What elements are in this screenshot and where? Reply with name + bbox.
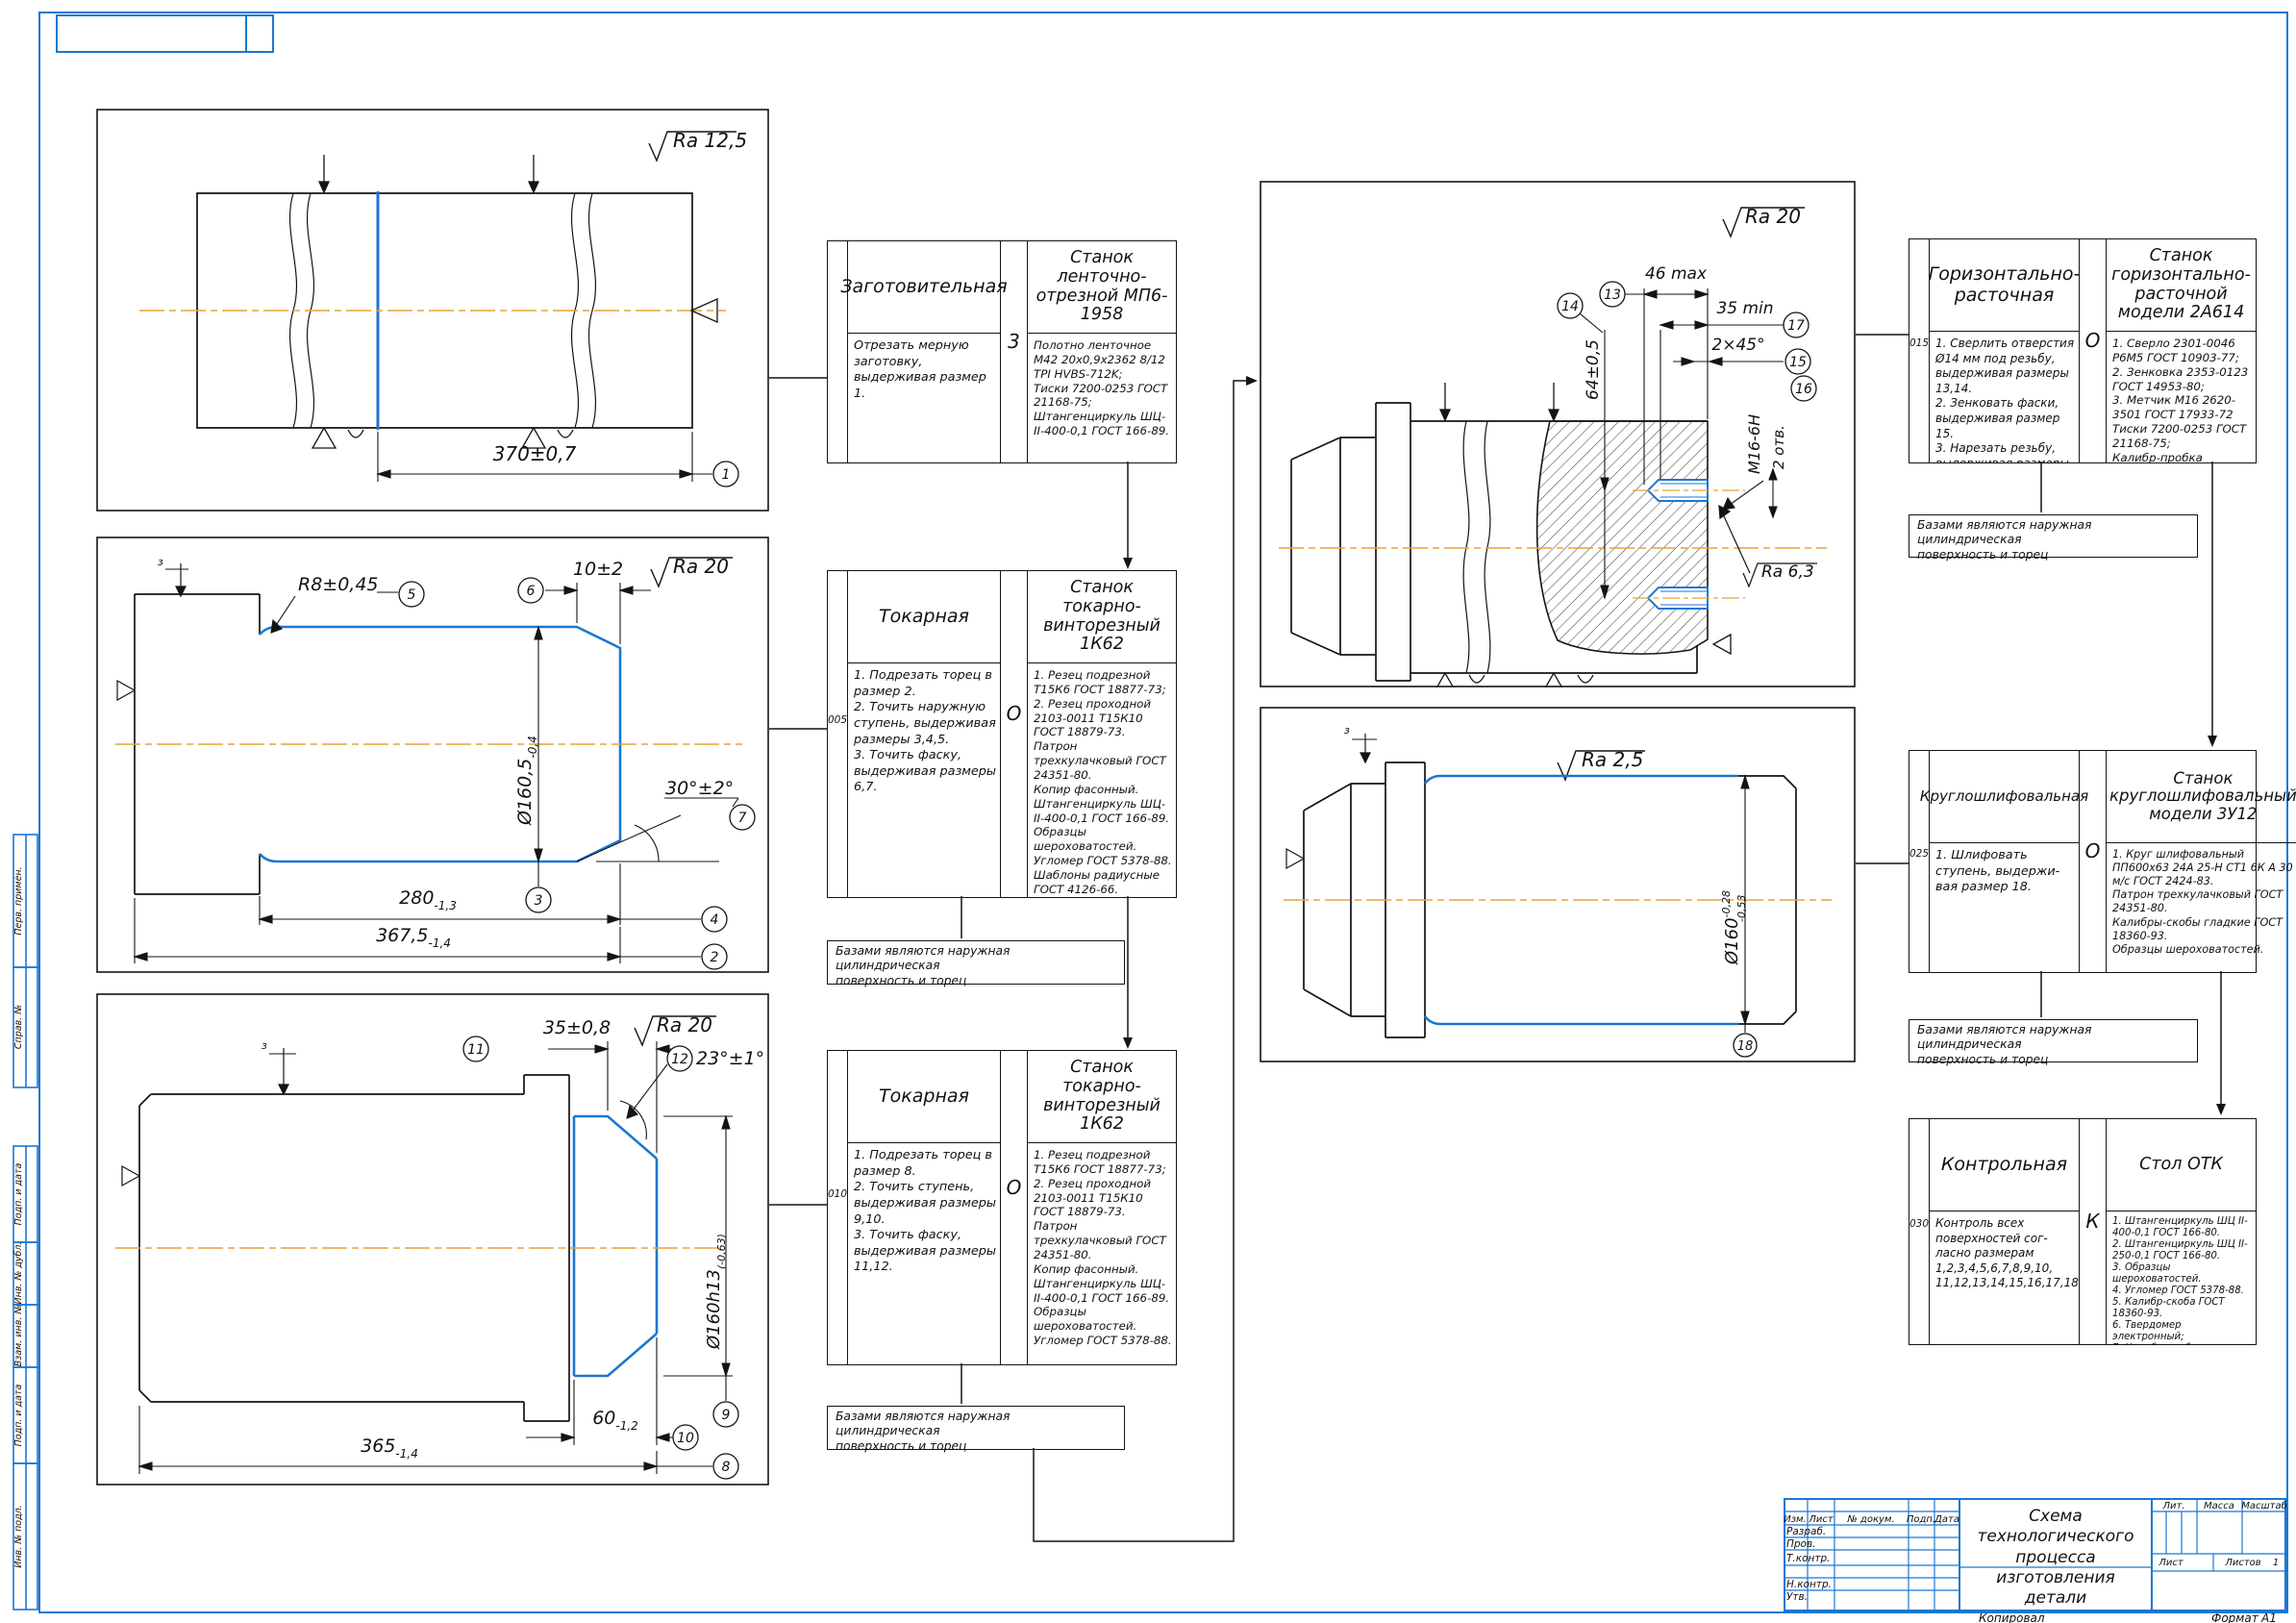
machine-name: Станок ленточно-отрезной МП6-1958 xyxy=(1028,241,1176,334)
dim-dia160-text: Ø160-0,28-0,53 xyxy=(1720,890,1748,965)
clamp-icon xyxy=(122,1048,296,1186)
machine-name: Станок токарно-винторезный 1К62 xyxy=(1028,571,1176,663)
format-label: Формат xyxy=(2211,1611,2259,1623)
balloon-4: 4 xyxy=(702,907,727,932)
op-number-cell xyxy=(828,241,848,462)
svg-text:11: 11 xyxy=(467,1042,485,1058)
datum-note-015: Базами являются наружная цилиндрическая … xyxy=(1909,514,2198,558)
dim-10 xyxy=(545,583,651,644)
balloon-18: 18 xyxy=(1734,1034,1757,1057)
op-steps: Отрезать мерную заготовку, выдерживая ра… xyxy=(848,334,1000,462)
clamp-label: з xyxy=(158,556,163,568)
dim-10-text: 10±2 xyxy=(573,559,623,580)
dim-dia160h13-text: Ø160h13(-0,63) xyxy=(704,1234,728,1350)
roughness-value: Ra 20 xyxy=(1745,205,1801,228)
dim-chamfer-text: 2×45° xyxy=(1711,336,1764,355)
svg-text:5: 5 xyxy=(408,587,416,603)
svg-text:16: 16 xyxy=(1795,382,1812,397)
thread-callout-qty: 2 отв. xyxy=(1770,425,1787,469)
op-steps: Контроль всех поверхностей сог- ласно ра… xyxy=(1930,1211,2079,1344)
balloon-16: 16 xyxy=(1791,376,1816,401)
machine-tools: 1. Резец подрезной Т15К6 ГОСТ 18877-73; … xyxy=(1028,663,1176,897)
dim-angle23 xyxy=(620,1064,667,1139)
machine-name: Станок токарно-винторезный 1К62 xyxy=(1028,1051,1176,1143)
svg-text:18: 18 xyxy=(1737,1039,1754,1054)
drawing-title: Схема технологического процесса изготовл… xyxy=(1963,1507,2148,1609)
op-number-cell: 005 xyxy=(828,571,848,897)
dim-35-text: 35±0,8 xyxy=(543,1017,611,1038)
machine-tools: Полотно ленточное М42 20х0,9х2362 8/12 T… xyxy=(1028,334,1176,462)
balloon-9: 9 xyxy=(713,1402,738,1427)
svg-text:13: 13 xyxy=(1604,287,1621,303)
machine-name: Стол ОТК xyxy=(2107,1119,2256,1211)
tb-row-utv: Утв. xyxy=(1786,1591,1808,1603)
op-name: Контрольная xyxy=(1930,1119,2079,1211)
tb-sheet: Лист xyxy=(2158,1558,2184,1568)
balloon-10: 10 xyxy=(673,1425,698,1450)
balloon-5: 5 xyxy=(399,582,424,607)
datum-note-025: Базами являются наружная цилиндрическая … xyxy=(1909,1019,2198,1062)
topleft-table xyxy=(56,14,274,53)
tb-sheets: Листов xyxy=(2224,1558,2260,1568)
margin-label: Инв. № подл. xyxy=(13,1505,24,1568)
opblock-tokarnaya-005: 005 Токарная 1. Подрезать торец в размер… xyxy=(827,570,1177,898)
tb-col-doc: № докум. xyxy=(1846,1514,1894,1525)
margin-label: Перв. примен. xyxy=(13,866,24,935)
dim-angle30 xyxy=(577,798,738,861)
tb-row-razrab: Разраб. xyxy=(1786,1526,1826,1537)
op-code-cell: 3 xyxy=(1000,241,1028,462)
dim-r8-text: R8±0,45 xyxy=(298,574,379,595)
dim-370-text: 370±0,7 xyxy=(493,442,577,465)
dim-280-text: 280-1,3 xyxy=(399,887,457,912)
op-number-cell: 025 xyxy=(1909,751,1930,972)
tb-col-sign: Подп. xyxy=(1907,1514,1935,1525)
balloon-1: 1 xyxy=(713,462,738,487)
roughness-value: Ra 2,5 xyxy=(1582,748,1643,771)
margin-label: Взам. инв. № xyxy=(13,1305,24,1367)
svg-text:3: 3 xyxy=(535,893,543,909)
balloon-2: 2 xyxy=(702,944,727,969)
tb-sheets-value: 1 xyxy=(2273,1558,2279,1568)
svg-text:2: 2 xyxy=(711,950,719,965)
datum-note-010: Базами являются наружная цилиндрическая … xyxy=(827,1406,1125,1450)
tb-scale: Масштаб xyxy=(2241,1500,2286,1511)
balloon-6: 6 xyxy=(518,578,543,603)
roughness-value: Ra 20 xyxy=(673,555,729,578)
dim-35min-text: 35 min xyxy=(1716,299,1773,318)
dim-angle30-text: 30°±2° xyxy=(665,778,734,799)
balloon-15: 15 xyxy=(1785,349,1810,374)
format-value: А1 xyxy=(2261,1611,2277,1623)
dim-280 xyxy=(260,863,701,925)
roughness-value: Ra 20 xyxy=(657,1013,712,1036)
op-code-cell: О xyxy=(2079,751,2107,972)
margin-label: Подп. и дата xyxy=(13,1162,24,1225)
tb-col-izm: Изм. xyxy=(1784,1514,1807,1525)
dim-angle23-text: 23°±1° xyxy=(696,1048,764,1069)
machine-tools: 1. Резец подрезной Т15К6 ГОСТ 18877-73; … xyxy=(1028,1143,1176,1364)
balloon-17: 17 xyxy=(1784,312,1809,337)
tb-row-prov: Пров. xyxy=(1786,1538,1816,1550)
section-hatch xyxy=(1537,421,1708,654)
tb-col-date: Дата xyxy=(1934,1514,1959,1525)
drawing-turning-1: Ra 20 з R8±0,45 5 10±2 6 Ø160,5-0,4 3 xyxy=(96,537,769,973)
svg-text:9: 9 xyxy=(722,1408,731,1423)
op-number-cell: 010 xyxy=(828,1051,848,1364)
tb-lit: Лит. xyxy=(2161,1501,2184,1511)
drawing-turning-2: Ra 20 з 35±0,8 11 12 23°±1° Ø160h13(-0, xyxy=(96,993,769,1486)
dim-64-text: 64±0,5 xyxy=(1584,339,1603,400)
opblock-zagotovitelnaya: Заготовительная Отрезать мерную заготовк… xyxy=(827,240,1177,463)
op-code-cell: К xyxy=(2079,1119,2107,1344)
thread-callout: М16-6Н xyxy=(1745,414,1763,474)
op-number-cell: 015 xyxy=(1909,239,1930,462)
dim-365-text: 365-1,4 xyxy=(361,1436,418,1461)
balloon-3: 3 xyxy=(526,887,551,912)
dim-60-text: 60-1,2 xyxy=(592,1408,638,1433)
svg-text:15: 15 xyxy=(1789,355,1807,370)
clamp-label: з xyxy=(1344,724,1350,737)
op-code-cell: О xyxy=(2079,239,2107,462)
thread-leader xyxy=(1723,469,1777,517)
op-code-cell: О xyxy=(1000,571,1028,897)
opblock-tokarnaya-010: 010 Токарная 1. Подрезать торец в размер… xyxy=(827,1050,1177,1365)
balloon-7: 7 xyxy=(730,805,755,830)
svg-text:17: 17 xyxy=(1787,318,1805,334)
left-margin-labels: Перв. примен. Справ. № Подп. и дата Инв.… xyxy=(12,827,38,1613)
opblock-shlifovalnaya-025: 025 Круглошлифовальная 1. Шлифовать ступ… xyxy=(1909,750,2257,973)
tb-massa: Масса xyxy=(2204,1501,2234,1511)
clamp-label: з xyxy=(262,1039,267,1052)
balloon-8: 8 xyxy=(713,1454,738,1479)
op-steps: 1. Подрезать торец в размер 8. 2. Точить… xyxy=(848,1143,1000,1364)
topleft-table-divider xyxy=(245,14,247,51)
dim-365 xyxy=(139,1406,712,1474)
machine-tools: 1. Штангенциркуль ШЦ II-400-0,1 ГОСТ 166… xyxy=(2107,1211,2256,1344)
op-steps: 1. Шлифовать ступень, выдержи- вая разме… xyxy=(1930,843,2079,972)
tb-row-nkontr: Н.контр. xyxy=(1786,1579,1832,1590)
dim-46-text: 46 max xyxy=(1645,264,1708,284)
op-steps: 1. Сверлить отверстия Ø14 мм под резьбу,… xyxy=(1930,332,2079,462)
margin-label: Справ. № xyxy=(13,1005,24,1049)
machined-profile xyxy=(574,1116,657,1376)
technology-process-sheet: Перв. примен. Справ. № Подп. и дата Инв.… xyxy=(0,0,2296,1623)
drawing-grinding: Ra 2,5 з Ø160-0,28-0,53 18 xyxy=(1260,707,1856,1062)
svg-text:8: 8 xyxy=(722,1460,731,1475)
op-name: Горизонтально-расточная xyxy=(1930,239,2079,332)
tb-row-tkontr: Т.контр. xyxy=(1786,1553,1831,1564)
machine-tools: 1. Сверло 2301-0046 Р6М5 ГОСТ 10903-77; … xyxy=(2107,332,2256,462)
opblock-rastochnaya-015: 015 Горизонтально-расточная 1. Сверлить … xyxy=(1909,238,2257,463)
op-steps: 1. Подрезать торец в размер 2. 2. Точить… xyxy=(848,663,1000,897)
roughness-hole-value: Ra 6,3 xyxy=(1761,562,1814,582)
margin-label: Подп. и дата xyxy=(13,1384,24,1446)
machine-name: Станок горизонтально-расточной модели 2А… xyxy=(2107,239,2256,332)
clamp-icons xyxy=(312,155,717,448)
op-name: Круглошлифовальная xyxy=(1930,751,2079,843)
copied-label: Копировал xyxy=(1979,1611,2045,1623)
balloon-12: 12 xyxy=(667,1046,692,1071)
clamp-icon xyxy=(1286,734,1377,868)
datum-note-005: Базами являются наружная цилиндрическая … xyxy=(827,940,1125,985)
svg-text:14: 14 xyxy=(1561,299,1579,314)
op-code-cell: О xyxy=(1000,1051,1028,1364)
margin-label: Инв. № дубл. xyxy=(13,1242,24,1305)
svg-text:4: 4 xyxy=(711,912,719,928)
svg-text:12: 12 xyxy=(671,1052,688,1067)
op-name: Токарная xyxy=(848,571,1000,663)
svg-text:6: 6 xyxy=(527,584,536,599)
machine-tools: 1. Круг шлифовальный ПП600х63 24А 25-Н С… xyxy=(2107,843,2296,972)
svg-text:1: 1 xyxy=(722,467,731,483)
balloon-14: 14 xyxy=(1558,293,1583,318)
roughness-value: Ra 12,5 xyxy=(673,129,747,152)
dim-367-text: 367,5-1,4 xyxy=(376,925,451,950)
balloon-13: 13 xyxy=(1600,282,1625,307)
balloon-11: 11 xyxy=(463,1036,488,1061)
op-number-cell: 030 xyxy=(1909,1119,1930,1344)
op-name: Заготовительная xyxy=(848,241,1000,334)
dim-60 xyxy=(526,1337,673,1445)
op-name: Токарная xyxy=(848,1051,1000,1143)
opblock-kontrolnaya-030: 030 Контрольная Контроль всех поверхност… xyxy=(1909,1118,2257,1345)
dim-chamfer xyxy=(1673,358,1784,365)
machine-name: Станок круглошлифовальный модели 3У12 xyxy=(2107,751,2296,843)
svg-text:7: 7 xyxy=(738,811,747,826)
tb-col-list: Лист xyxy=(1808,1514,1834,1525)
clamp-icon xyxy=(117,563,188,700)
svg-text:10: 10 xyxy=(677,1431,694,1446)
dim-dia160-text: Ø160,5-0,4 xyxy=(514,736,539,826)
drawing-boring: Ra 20 64±0,5 14 xyxy=(1260,181,1856,687)
drawing-blank-cutoff: Ra 12,5 370±0,7 1 xyxy=(96,109,769,512)
